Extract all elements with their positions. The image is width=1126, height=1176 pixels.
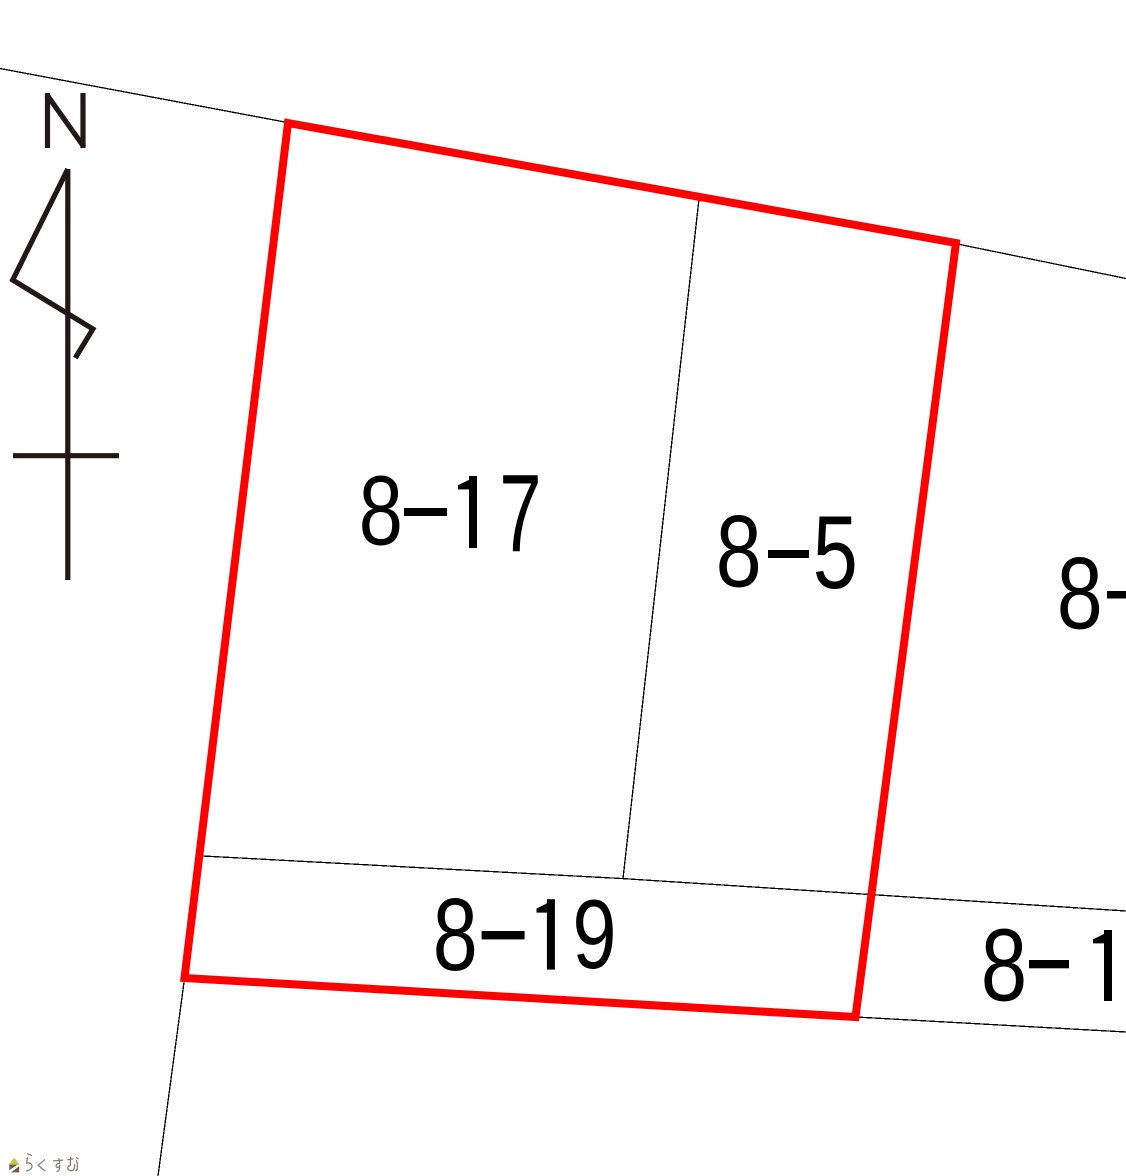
svg-text:8: 8 — [433, 877, 478, 993]
svg-text:8: 8 — [716, 494, 762, 608]
svg-text:8: 8 — [359, 455, 403, 565]
svg-text:5: 5 — [813, 494, 858, 610]
svg-text:8: 8 — [1057, 536, 1103, 650]
svg-text:9: 9 — [572, 879, 616, 989]
svg-text:8: 8 — [981, 907, 1027, 1022]
svg-text:7: 7 — [499, 453, 541, 576]
